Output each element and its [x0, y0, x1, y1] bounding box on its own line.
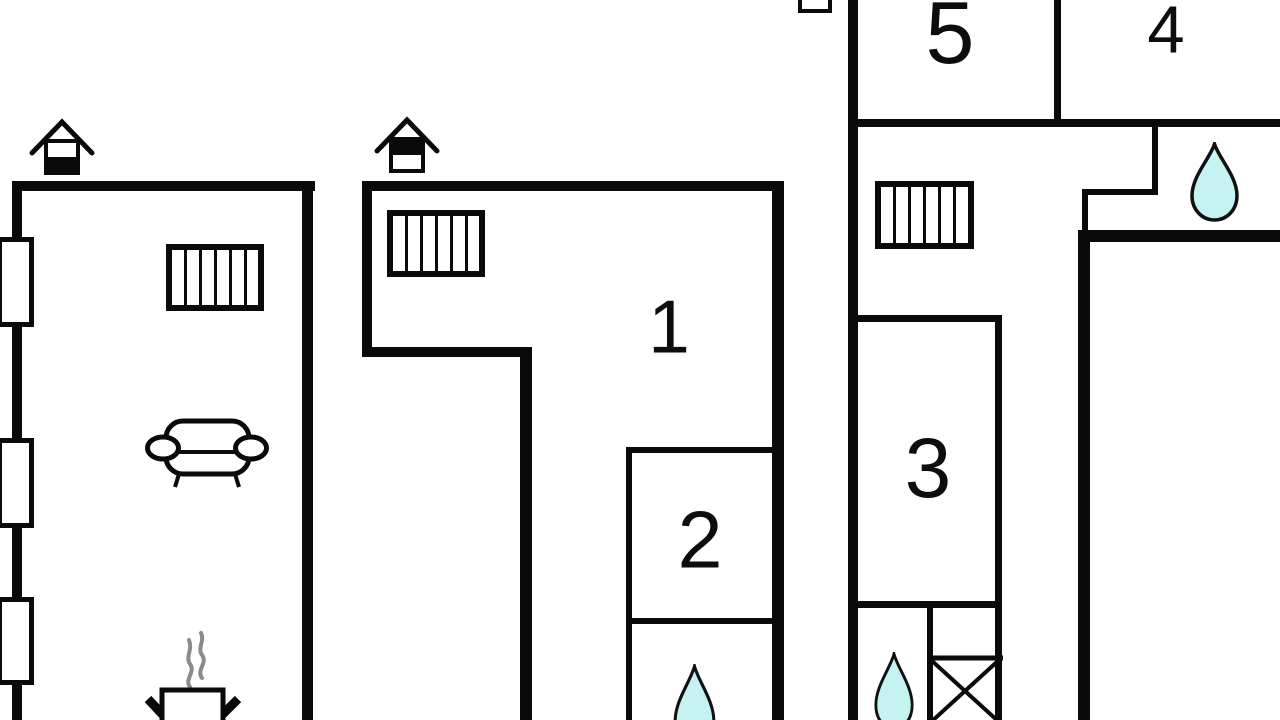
bathroom-step-wall-horizontal [1082, 189, 1158, 195]
room2-left-wall [626, 447, 632, 720]
middle-building-left-wall-upper [362, 181, 372, 357]
floorplan-canvas: 1 2 3 4 5 [0, 0, 1280, 720]
room-3-label: 3 [905, 426, 952, 510]
radiator-icon-left-building [166, 244, 264, 311]
room-5-label: 5 [926, 0, 975, 77]
bathroom-left-wall [1152, 119, 1158, 195]
house-vent-icon-top-cut [798, 0, 832, 13]
stove-icon [140, 628, 244, 720]
room-2-label: 2 [677, 501, 722, 582]
room2-bottom-wall [626, 618, 778, 624]
room2-top-wall [626, 447, 778, 453]
radiator-icon-right-building [875, 181, 974, 249]
house-vent-icon-left [29, 117, 95, 180]
water-drop-icon-bathroom-top [1186, 142, 1243, 228]
room-4-label: 4 [1147, 0, 1184, 64]
room3-top-wall [858, 315, 1002, 322]
room5-room4-divider-wall [1054, 0, 1061, 124]
bathroom-bottom-outer-wall [1078, 230, 1280, 242]
window-icon-3 [0, 597, 34, 685]
bathroom-step-wall-vertical [1082, 189, 1088, 236]
left-building-top-wall [12, 181, 315, 191]
radiator-icon-middle-building [387, 210, 485, 277]
room-1-label: 1 [648, 290, 690, 365]
shower-cross-icon [927, 654, 1003, 720]
middle-building-top-wall [362, 181, 784, 191]
rooms45-bottom-wall [848, 119, 1280, 127]
right-building-right-wall-lower [1078, 230, 1090, 720]
water-drop-icon-middle-bottom [670, 664, 719, 720]
water-drop-icon-right-bottom [871, 652, 917, 720]
window-icon-2 [0, 438, 34, 528]
middle-building-left-wall-lower [520, 347, 532, 720]
right-building-left-wall [848, 0, 858, 720]
left-building-right-wall [302, 181, 313, 720]
window-icon-1 [0, 237, 34, 327]
middle-building-step-wall [362, 347, 528, 357]
sofa-icon [145, 418, 269, 495]
house-vent-icon-middle [374, 115, 440, 178]
